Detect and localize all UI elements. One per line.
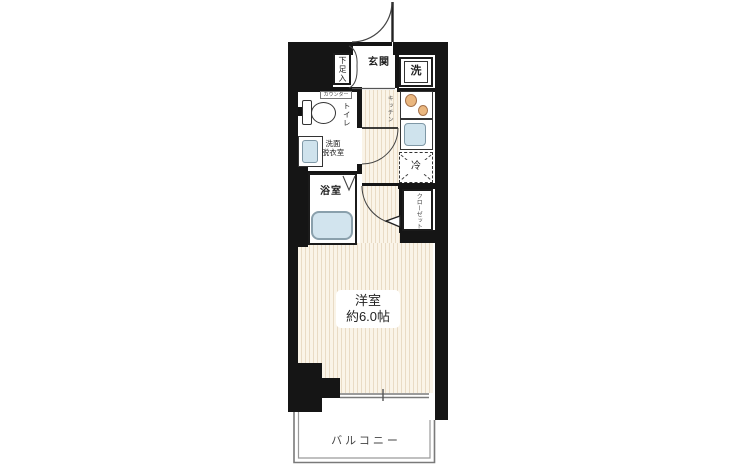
kitchen-label: キッチン [384, 94, 393, 124]
floor-plan: 玄関 下足入 洗 カウンター トイレ 洗面 脱衣室 浴室 キッチン 冷 クローゼ… [0, 0, 730, 470]
main-room-size-label: 約6.0帖 [336, 309, 400, 325]
plan-linework [0, 0, 730, 470]
closet-label: クローゼット [413, 191, 422, 230]
washroom-door-arc [362, 128, 398, 164]
cabinet-door-arc [349, 46, 357, 66]
counter-label: カウンター [320, 91, 352, 99]
main-room-name-label: 洋室 [336, 293, 400, 309]
cabinet-door-arc [349, 66, 357, 88]
washing-machine-label: 洗 [404, 64, 428, 80]
toilet-label: トイレ [342, 101, 351, 129]
entrance-door-arc [352, 2, 392, 42]
balcony-label: バルコニー [316, 434, 416, 450]
bathroom-label: 浴室 [314, 185, 348, 199]
shoe-storage-label: 下足入 [337, 55, 347, 84]
refrigerator-label: 冷 [406, 160, 426, 174]
entrance-label: 玄関 [360, 56, 398, 70]
washroom-label2: 脱衣室 [318, 148, 348, 158]
room-door-leaf [386, 216, 400, 227]
